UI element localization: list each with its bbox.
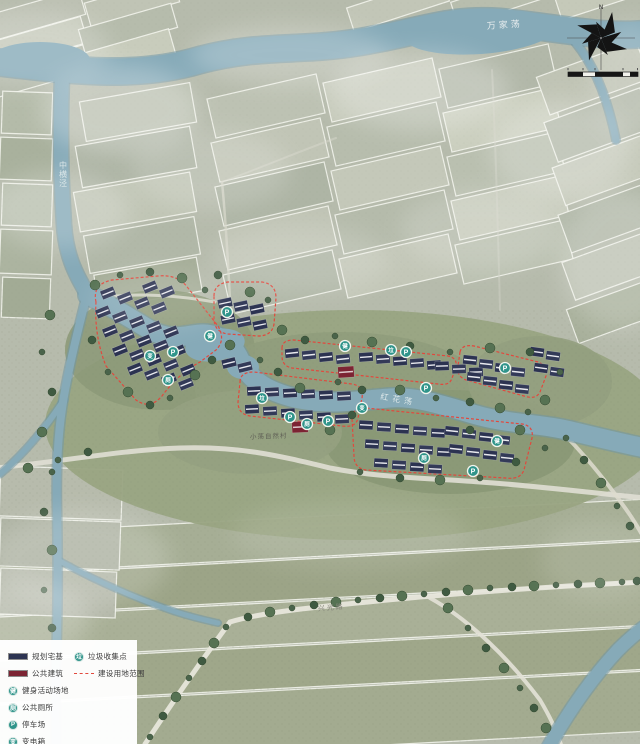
svg-text:厕: 厕 [165,376,171,384]
tree [265,607,275,617]
legend-boundary: 建设用地范围 [74,665,145,682]
tree [443,603,453,613]
tree [274,368,282,376]
building [435,361,449,370]
building [336,354,351,364]
tree [123,387,133,397]
legend-column-right: 垃垃圾收集点建设用地范围 [74,648,145,682]
haze-cloud [210,225,390,295]
building [413,426,427,436]
parking-icon: P [500,363,511,374]
haze-cloud [90,270,230,330]
tree [540,395,550,405]
tree [208,356,216,364]
legend-boundary-dash [74,673,94,674]
svg-text:健: 健 [207,332,213,340]
legend-toilet-icon: 厕 [8,703,18,713]
toilet-icon: 厕 [163,375,174,386]
building [515,384,530,394]
building [337,391,351,401]
building [319,390,333,400]
svg-text:厕: 厕 [304,420,310,428]
tree [295,383,305,393]
tree [376,594,384,602]
tree [147,734,153,740]
tree [529,581,539,591]
svg-text:健: 健 [342,342,348,350]
tree [596,478,606,488]
svg-text:P: P [225,310,230,317]
tree [48,388,56,396]
legend-toilet: 厕公共厕所 [8,699,69,716]
tree [395,385,405,395]
legend-toilet-label: 公共厕所 [22,702,53,713]
haze-cloud [130,130,290,210]
svg-text:P: P [171,350,176,357]
legend-boundary-label: 建设用地范围 [98,668,145,679]
tree [541,723,551,733]
tree [435,475,445,485]
svg-text:变: 变 [359,404,365,412]
building [263,406,277,416]
building [376,354,391,364]
tree [614,503,620,509]
building [483,450,498,460]
tree [348,411,356,419]
tree [482,644,490,652]
building [392,460,406,470]
legend-transformer-label: 变电箱 [22,736,45,744]
parking-icon: P [222,307,233,318]
tree [487,585,493,591]
garbage-icon: 垃 [257,393,268,404]
tree [105,369,111,375]
tree [530,704,538,712]
tree [49,469,55,475]
fitness-icon: 健 [340,341,351,352]
tree [171,692,181,702]
building [511,367,526,377]
building [365,439,379,449]
haze-cloud [330,50,510,130]
building [319,352,334,362]
building [377,422,391,432]
tree [332,333,338,339]
building [483,376,498,386]
tree [225,340,235,350]
svg-text:P: P [326,419,331,426]
parking-icon: P [285,412,296,423]
tree [485,343,495,353]
legend-garbage-icon: 垃 [74,652,84,662]
tree [167,395,173,401]
parking-icon: P [401,347,412,358]
parking-icon: P [323,416,334,427]
building [445,426,460,436]
tree [499,663,509,673]
tree [465,625,471,631]
tree [477,475,483,481]
svg-text:垃: 垃 [388,346,394,354]
toilet-icon: 厕 [302,419,313,430]
tree [466,426,474,434]
tree [515,425,525,435]
tree [146,401,154,409]
building [545,351,560,362]
river-label-zhonghengjing: 中横泾 [59,160,67,188]
tree [525,409,531,415]
building [285,348,300,358]
tree [463,585,473,595]
tree [45,310,55,320]
haze-cloud [400,190,560,270]
legend-parking-label: 停车场 [22,719,45,730]
tree [37,427,47,437]
building [359,420,373,430]
tree [159,712,167,720]
building [395,424,409,434]
building [383,441,397,451]
tree [277,325,287,335]
tree [517,685,523,691]
building [449,444,464,454]
tree [542,445,548,451]
tree [198,657,206,665]
svg-text:P: P [288,415,293,422]
parking-icon: P [421,383,432,394]
tree [367,337,377,347]
tree [55,457,61,463]
tree [466,398,474,406]
building [463,355,478,365]
north-label: N [599,5,603,11]
svg-text:厕: 厕 [421,454,427,462]
legend-public-building-swatch [8,670,28,677]
building [302,350,317,360]
tree [244,613,252,621]
legend-parking-icon: P [8,720,18,730]
tree [442,588,450,596]
public-building [338,366,355,378]
legend-public-building-label: 公共建筑 [32,668,63,679]
garbage-icon: 垃 [386,345,397,356]
tree [335,379,341,385]
parking-icon: P [468,466,479,477]
tree [396,474,404,482]
transformer-icon: 变 [145,351,156,362]
tree [88,336,96,344]
building [466,447,481,457]
legend-column-left: 规划宅基公共建筑健健身活动场地厕公共厕所P停车场变变电箱 [8,648,69,744]
building [374,458,388,468]
legend-homestead: 规划宅基 [8,648,69,665]
tree [421,591,427,597]
tree [289,605,295,611]
building [533,363,548,374]
tree [39,349,45,355]
building [245,404,259,414]
legend-garbage: 垃垃圾收集点 [74,648,145,665]
svg-text:变: 变 [147,352,153,360]
tree [257,357,263,363]
tree [357,469,363,475]
tree [433,395,439,401]
legend-public-building: 公共建筑 [8,665,69,682]
fitness-icon: 健 [205,331,216,342]
svg-text:健: 健 [494,437,500,445]
tree [84,448,92,456]
toilet-icon: 厕 [419,453,430,464]
legend-fitness: 健健身活动场地 [8,682,69,699]
legend-fitness-icon: 健 [8,686,18,696]
building [479,359,494,369]
svg-text:P: P [471,469,476,476]
legend-fitness-label: 健身活动场地 [22,685,69,696]
tree [526,348,534,356]
map-canvas: P变厕健P垃P厕P变健垃PPP厕健P 万家荡中横泾红花荡兴光路小荡自然村 N [0,0,640,744]
tree [186,675,192,681]
svg-text:P: P [404,350,409,357]
tree [190,370,200,380]
tree [563,435,569,441]
tree [301,336,309,344]
tree [557,369,563,375]
transformer-icon: 变 [357,403,368,414]
site-plan-map: P变厕健P垃P厕P变健垃PPP厕健P 万家荡中横泾红花荡兴光路小荡自然村 N 规… [0,0,640,744]
building [410,358,425,368]
building [359,352,374,362]
legend-panel: 规划宅基公共建筑健健身活动场地厕公共厕所P停车场变变电箱 垃垃圾收集点建设用地范… [0,640,137,744]
tree [265,297,271,303]
tree [223,624,229,630]
legend-transformer-icon: 变 [8,737,18,744]
legend-parking: P停车场 [8,716,69,733]
legend-homestead-swatch [8,653,28,660]
parking-icon: P [168,347,179,358]
tree [355,597,361,603]
building [428,464,442,474]
legend-transformer: 变变电箱 [8,733,69,744]
tree [512,458,520,466]
tree [508,583,516,591]
legend-homestead-label: 规划宅基 [32,651,63,662]
svg-text:垃: 垃 [259,394,265,402]
tree [209,638,219,648]
haze-cloud [230,500,470,570]
building [401,443,415,453]
building [499,380,514,390]
tree [495,403,505,413]
tree [23,463,33,473]
svg-text:P: P [424,386,429,393]
legend-garbage-label: 垃圾收集点 [88,651,127,662]
building [452,364,466,373]
tree [358,386,366,394]
tree [580,456,588,464]
building [431,428,445,438]
building [467,372,482,382]
tree [447,349,453,355]
fitness-icon: 健 [492,436,503,447]
svg-text:P: P [503,366,508,373]
building [335,414,349,424]
tree [397,591,407,601]
